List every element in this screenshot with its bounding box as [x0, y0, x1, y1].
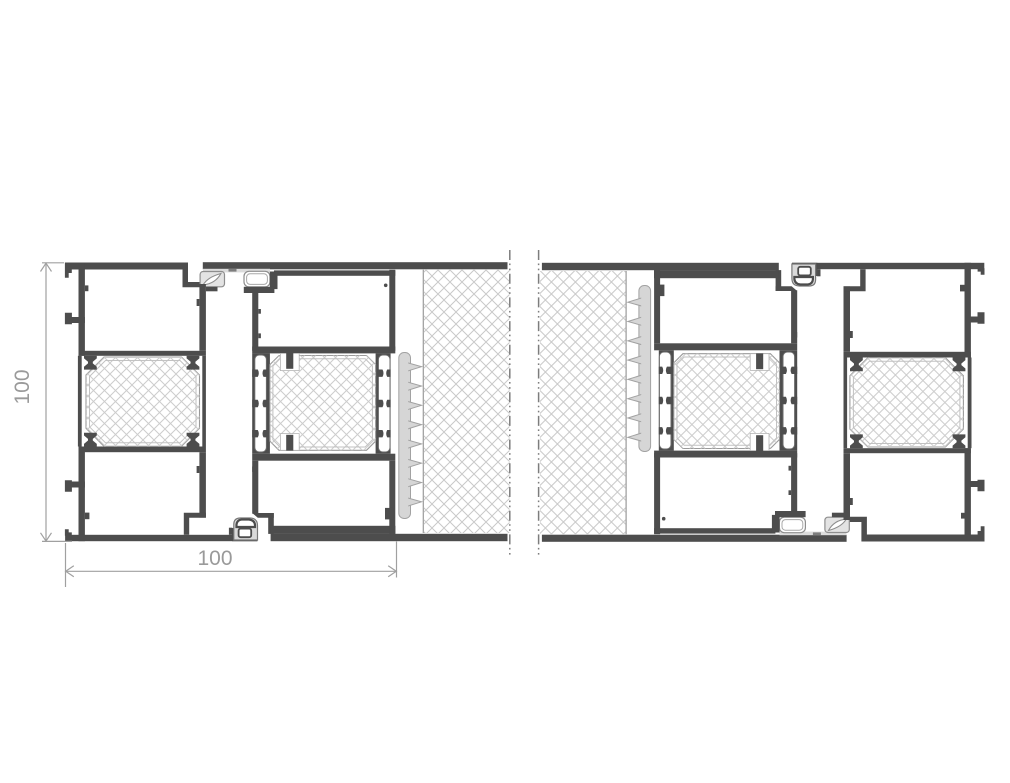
svg-text:100: 100 [11, 369, 34, 404]
svg-text:100: 100 [197, 547, 232, 570]
